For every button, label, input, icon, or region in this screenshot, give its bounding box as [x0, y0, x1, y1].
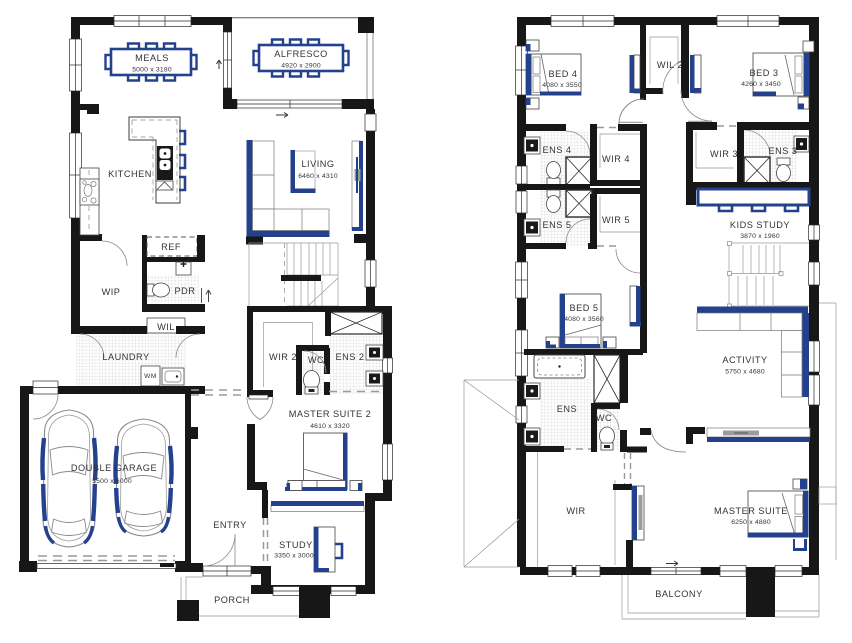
svg-text:BED 3: BED 3 — [749, 68, 778, 78]
svg-text:WIR 3: WIR 3 — [710, 149, 738, 159]
svg-text:5750 x 4680: 5750 x 4680 — [725, 369, 765, 376]
svg-text:3350 x 3000: 3350 x 3000 — [274, 553, 314, 560]
svg-text:ENS: ENS — [557, 404, 577, 414]
svg-text:REF: REF — [161, 242, 181, 252]
svg-text:MEALS: MEALS — [135, 53, 169, 63]
svg-text:PORCH: PORCH — [214, 595, 250, 605]
svg-text:4920 x 2900: 4920 x 2900 — [281, 63, 321, 70]
svg-text:3870 x 1960: 3870 x 1960 — [740, 233, 780, 240]
svg-text:DOUBLE GARAGE: DOUBLE GARAGE — [71, 463, 157, 473]
svg-text:STUDY: STUDY — [279, 540, 313, 550]
svg-text:WM: WM — [144, 373, 157, 380]
svg-text:WIL: WIL — [157, 322, 175, 332]
svg-text:4080 x 3550: 4080 x 3550 — [542, 82, 582, 89]
svg-text:ENTRY: ENTRY — [213, 520, 246, 530]
svg-text:BED 4: BED 4 — [548, 69, 577, 79]
svg-text:BALCONY: BALCONY — [655, 589, 702, 599]
svg-text:4610 x 3320: 4610 x 3320 — [310, 423, 350, 430]
svg-text:WIL 2: WIL 2 — [657, 60, 683, 70]
svg-text:5500 x 6000: 5500 x 6000 — [92, 478, 132, 485]
svg-text:KIDS STUDY: KIDS STUDY — [730, 220, 790, 230]
svg-text:ENS 2: ENS 2 — [335, 352, 364, 362]
svg-text:PDR: PDR — [175, 286, 196, 296]
svg-text:WIR 4: WIR 4 — [602, 154, 630, 164]
svg-text:WIR 5: WIR 5 — [602, 215, 630, 225]
svg-text:KITCHEN: KITCHEN — [108, 169, 152, 179]
svg-text:6460 x 4310: 6460 x 4310 — [298, 173, 338, 180]
svg-text:WIP: WIP — [102, 287, 121, 297]
svg-text:ENS 4: ENS 4 — [542, 145, 571, 155]
svg-text:6250 x 4880: 6250 x 4880 — [731, 519, 771, 526]
svg-text:5000 x 3180: 5000 x 3180 — [132, 67, 172, 74]
svg-text:ALFRESCO: ALFRESCO — [274, 49, 328, 59]
svg-text:LIVING: LIVING — [301, 159, 334, 169]
svg-text:WC: WC — [308, 355, 324, 365]
svg-text:WIR 2: WIR 2 — [269, 352, 297, 362]
svg-text:ENS 5: ENS 5 — [542, 220, 571, 230]
svg-text:WC: WC — [596, 413, 612, 423]
svg-text:ENS 3: ENS 3 — [768, 146, 797, 156]
svg-text:4080 x 3560: 4080 x 3560 — [564, 316, 604, 323]
svg-text:4260 x 3450: 4260 x 3450 — [741, 81, 781, 88]
svg-text:ACTIVITY: ACTIVITY — [722, 355, 767, 365]
svg-text:LAUNDRY: LAUNDRY — [102, 352, 149, 362]
svg-text:MASTER SUITE: MASTER SUITE — [714, 506, 788, 516]
svg-text:BED 5: BED 5 — [569, 303, 598, 313]
svg-text:MASTER SUITE 2: MASTER SUITE 2 — [289, 409, 372, 419]
svg-text:WIR: WIR — [566, 506, 585, 516]
